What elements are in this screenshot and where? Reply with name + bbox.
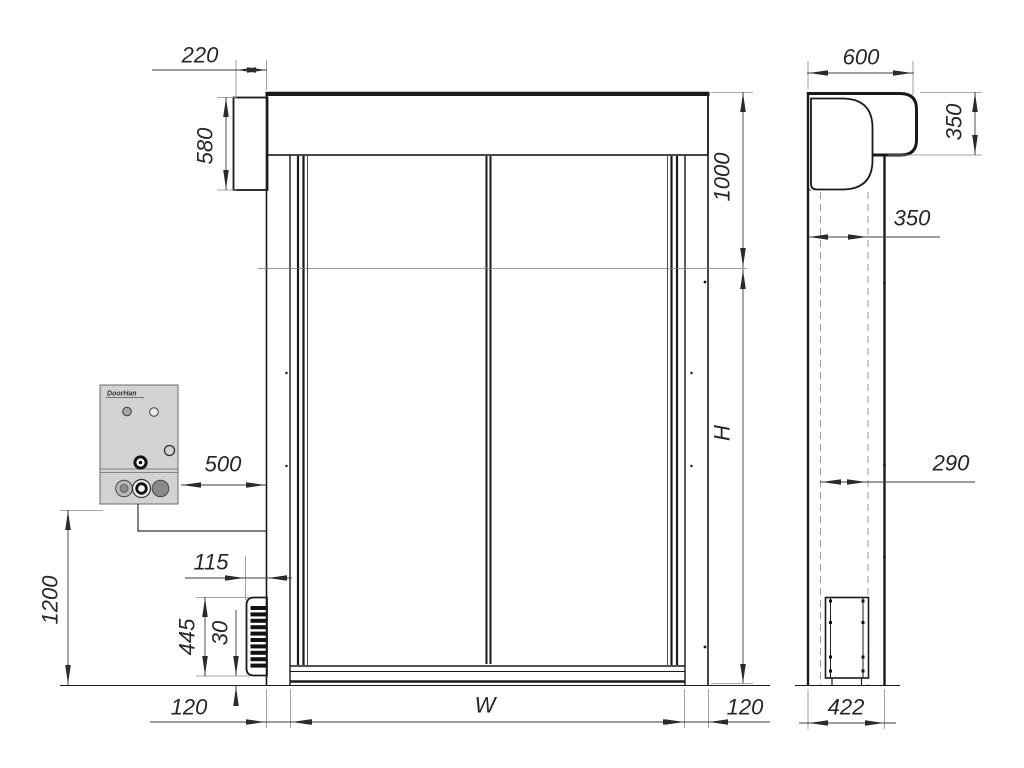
dim-side-column-depth: 422 <box>799 689 896 729</box>
left-column <box>267 92 291 685</box>
dim-wall-to-curtain: 350 <box>808 206 940 238</box>
dim-label: 290 <box>932 451 970 476</box>
dim-label: 120 <box>171 695 208 720</box>
dim-label: H <box>710 425 735 441</box>
dim-top-section-height: 1000 <box>710 92 754 268</box>
right-column <box>685 92 708 685</box>
dim-label: 445 <box>175 618 200 655</box>
dim-door-width: W <box>291 693 684 723</box>
control-box-brand: DoorHan <box>107 391 137 398</box>
dim-photocell-bottom-gap: 30 <box>208 610 237 703</box>
indicator-led <box>150 408 159 417</box>
dim-control-box-offset: 500 <box>181 452 266 486</box>
dim-label: 1000 <box>710 152 735 202</box>
dim-label: 600 <box>843 45 880 70</box>
dim-hood-side-box-width: 220 <box>152 43 267 97</box>
control-cable <box>138 504 267 531</box>
fastener-dots-front <box>285 281 706 649</box>
side-view <box>795 92 917 686</box>
dim-label: 30 <box>208 620 233 645</box>
dim-label: 500 <box>205 452 242 477</box>
dim-label: 350 <box>894 206 931 231</box>
dim-motor-housing-height: 580 <box>193 97 238 190</box>
dim-door-height: H <box>710 269 754 684</box>
indicator-led <box>123 407 132 416</box>
dim-label: 350 <box>942 103 967 140</box>
dim-left-column-width: 120 <box>150 689 313 728</box>
curtain-center-seam <box>487 156 491 664</box>
bottom-bar <box>290 666 685 682</box>
dim-label: 120 <box>727 695 764 720</box>
control-box: DoorHan <box>100 385 267 531</box>
dim-label: 580 <box>193 127 218 164</box>
dim-label: 1200 <box>38 575 63 625</box>
dim-control-box-mount-height: 1200 <box>38 510 104 685</box>
dim-label: 422 <box>828 695 865 720</box>
dim-hood-height: 350 <box>888 92 982 155</box>
dim-roll-clearance: 290 <box>820 451 975 483</box>
roll-silhouette <box>811 99 873 190</box>
dim-label: 220 <box>181 43 219 68</box>
header-box <box>267 93 708 156</box>
dim-label: 115 <box>193 550 229 575</box>
dim-hood-depth: 600 <box>807 45 914 96</box>
photocell-side-box <box>826 598 869 686</box>
key-switch <box>135 457 146 468</box>
photocell-grille <box>247 598 268 676</box>
dim-photocell-depth: 115 <box>185 550 292 601</box>
door-technical-drawing: DoorHan <box>0 0 1024 768</box>
push-buttons <box>116 480 169 498</box>
dim-label: W <box>475 693 498 718</box>
dim-right-column-width: 120 <box>662 689 770 728</box>
motor-housing <box>234 98 268 191</box>
